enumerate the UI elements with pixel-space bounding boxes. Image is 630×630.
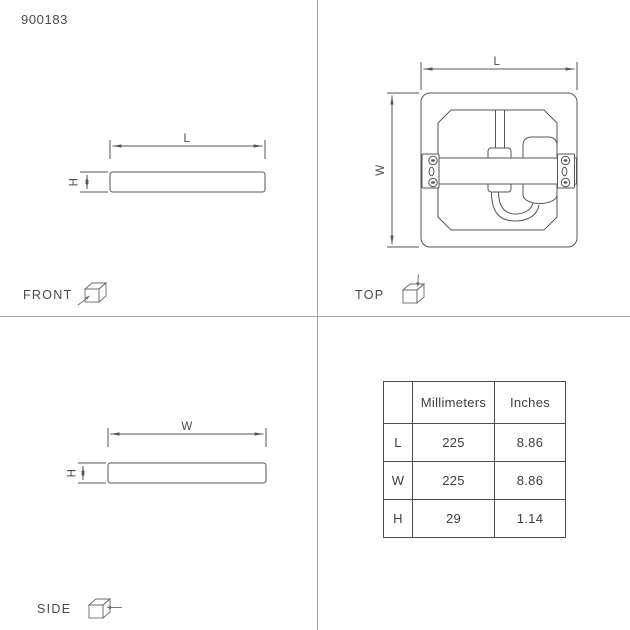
length-inches-value: 8.86 — [495, 424, 566, 462]
row-label-l: L — [384, 424, 413, 462]
height-inches-value: 1.14 — [495, 500, 566, 538]
top-view-drawing: L W — [375, 56, 577, 247]
front-view-label: FRONT — [23, 288, 73, 302]
length-millimeters-value: 225 — [413, 424, 495, 462]
table-row-length: L 225 8.86 — [384, 424, 566, 462]
inches-column-header: Inches — [495, 382, 566, 424]
side-view-drawing: W H — [67, 421, 267, 483]
top-w-dimension-label: W — [375, 164, 387, 175]
dimensions-table: Millimeters Inches L 225 8.86 W 225 8.86… — [383, 381, 566, 538]
width-millimeters-value: 225 — [413, 462, 495, 500]
width-inches-value: 8.86 — [495, 462, 566, 500]
side-h-witness-lines — [78, 463, 106, 483]
row-label-h: H — [384, 500, 413, 538]
front-view-drawing: L H — [69, 133, 266, 192]
side-w-dimension-label: W — [181, 421, 192, 433]
side-view-label: SIDE — [37, 602, 71, 616]
table-header-row: Millimeters Inches — [384, 382, 566, 424]
front-h-dimension-label: H — [69, 178, 81, 187]
front-l-dimension-label: L — [184, 133, 191, 145]
cube-top-view-icon — [396, 274, 428, 305]
dimension-sheet: 900183 L H L W — [0, 0, 630, 630]
table-row-width: W 225 8.86 — [384, 462, 566, 500]
cube-front-view-icon — [77, 279, 109, 306]
front-fixture-body — [110, 172, 265, 192]
row-label-w: W — [384, 462, 413, 500]
height-millimeters-value: 29 — [413, 500, 495, 538]
table-row-height: H 29 1.14 — [384, 500, 566, 538]
front-h-witness-lines — [80, 172, 108, 192]
top-mounting-bar — [422, 158, 577, 184]
top-l-dimension-label: L — [494, 56, 501, 68]
millimeters-column-header: Millimeters — [413, 382, 495, 424]
top-center-stem — [496, 110, 505, 148]
side-h-dimension-label: H — [67, 469, 79, 478]
cube-side-view-icon — [83, 595, 123, 622]
top-view-label: TOP — [355, 288, 384, 302]
side-fixture-body — [108, 463, 266, 483]
corner-header-cell — [384, 382, 413, 424]
